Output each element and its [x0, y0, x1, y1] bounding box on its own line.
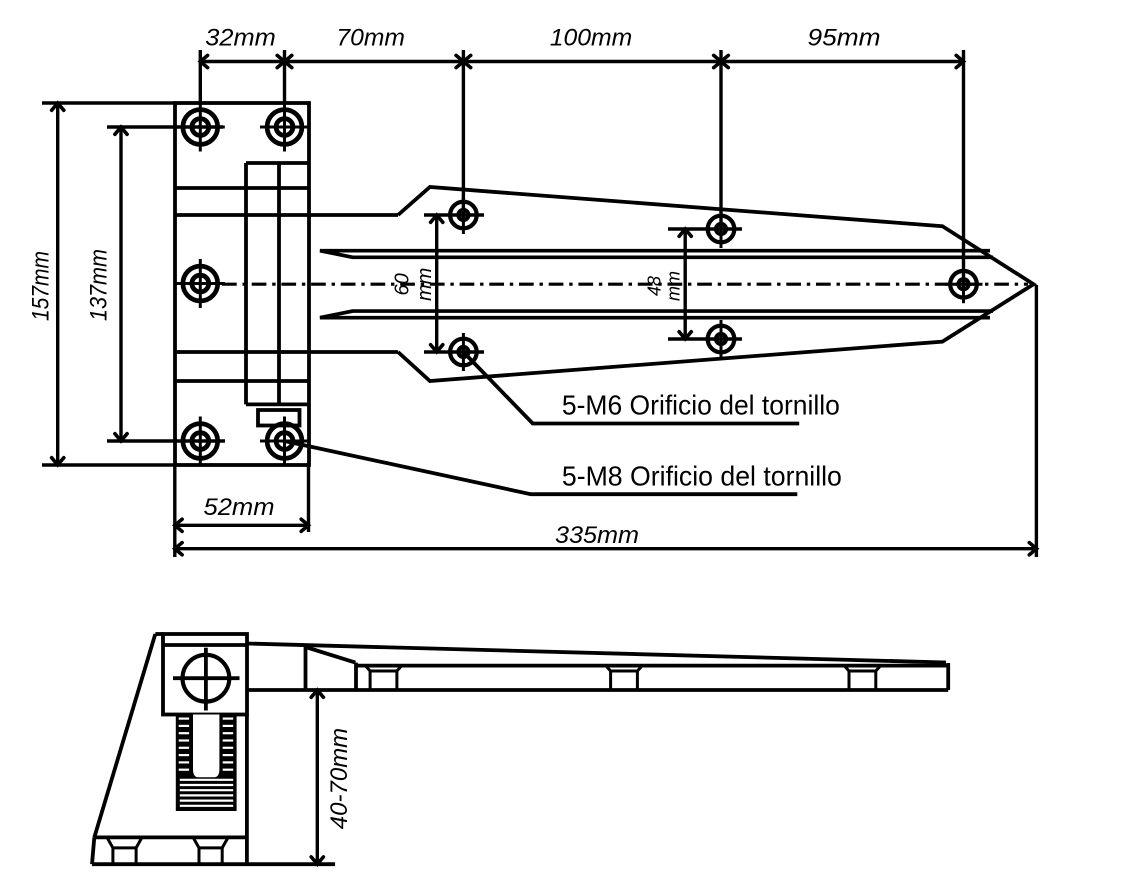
svg-text:mm: mm	[664, 271, 684, 301]
svg-text:52mm: 52mm	[204, 494, 275, 521]
svg-text:60: 60	[392, 273, 414, 295]
svg-text:5-M6 Orificio del tornillo: 5-M6 Orificio del tornillo	[562, 390, 840, 421]
svg-text:mm: mm	[414, 268, 436, 301]
svg-text:157mm: 157mm	[28, 251, 55, 321]
svg-text:95mm: 95mm	[808, 25, 881, 52]
svg-text:48: 48	[645, 276, 665, 296]
svg-text:335mm: 335mm	[555, 522, 639, 549]
svg-text:40-70mm: 40-70mm	[326, 728, 353, 829]
svg-text:137mm: 137mm	[86, 249, 113, 321]
svg-text:70mm: 70mm	[336, 25, 405, 52]
svg-text:100mm: 100mm	[550, 25, 633, 52]
svg-text:32mm: 32mm	[205, 25, 276, 52]
svg-text:5-M8 Orificio del tornillo: 5-M8 Orificio del tornillo	[562, 461, 842, 492]
